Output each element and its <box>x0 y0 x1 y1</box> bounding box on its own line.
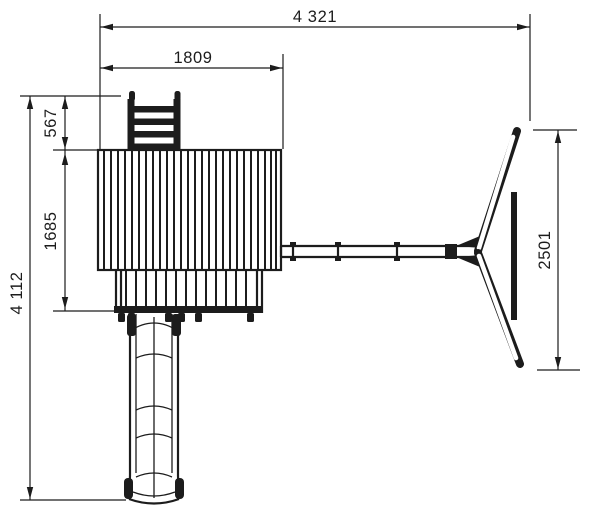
dim-label-overall-width: 4 321 <box>293 8 337 26</box>
dim-roof-width: 1809 <box>100 49 283 149</box>
deck-planks <box>126 271 246 306</box>
ladder-right-rail <box>174 99 181 150</box>
frame-leg-bottom-body <box>479 256 516 358</box>
deck-bottom-rail <box>114 306 263 313</box>
deck-posts <box>118 313 254 322</box>
slide-right-foot <box>175 478 184 499</box>
swing-a-frame <box>456 131 520 364</box>
access-ladder <box>128 91 181 150</box>
slide-top-left-fitting <box>127 314 136 336</box>
beam-joint-nubs <box>290 242 400 261</box>
beam-connector-block <box>445 244 457 259</box>
dim-label-ladder-depth: 567 <box>42 108 60 137</box>
swing-crossbar <box>511 192 517 320</box>
slide-exit-cap <box>129 499 179 504</box>
dim-label-roof-width: 1809 <box>173 49 212 67</box>
dim-swing-span: 2501 <box>533 130 580 370</box>
swing-beam <box>281 242 478 261</box>
ladder-right-cap <box>175 91 181 101</box>
roof-top-view <box>98 150 281 270</box>
slide-top-right-fitting <box>172 314 181 336</box>
playground-top-view-drawing: 4 321 1809 567 1685 4 112 2501 <box>0 0 600 515</box>
roof-planks <box>104 151 276 269</box>
tube-slide <box>124 314 184 504</box>
dim-overall-width: 4 321 <box>100 8 530 149</box>
ladder-left-cap <box>129 91 135 101</box>
slide-left-foot <box>124 478 133 499</box>
frame-leg-top-body <box>479 137 513 248</box>
ladder-left-rail <box>128 99 135 150</box>
technical-drawing-canvas: 4 321 1809 567 1685 4 112 2501 <box>0 0 600 515</box>
dim-label-deck-depth: 1685 <box>42 211 60 250</box>
dim-label-swing-span: 2501 <box>536 230 554 269</box>
dim-ladder-depth: 567 <box>20 96 121 150</box>
ladder-rungs <box>134 106 174 150</box>
dim-label-overall-depth: 4 112 <box>8 271 26 314</box>
